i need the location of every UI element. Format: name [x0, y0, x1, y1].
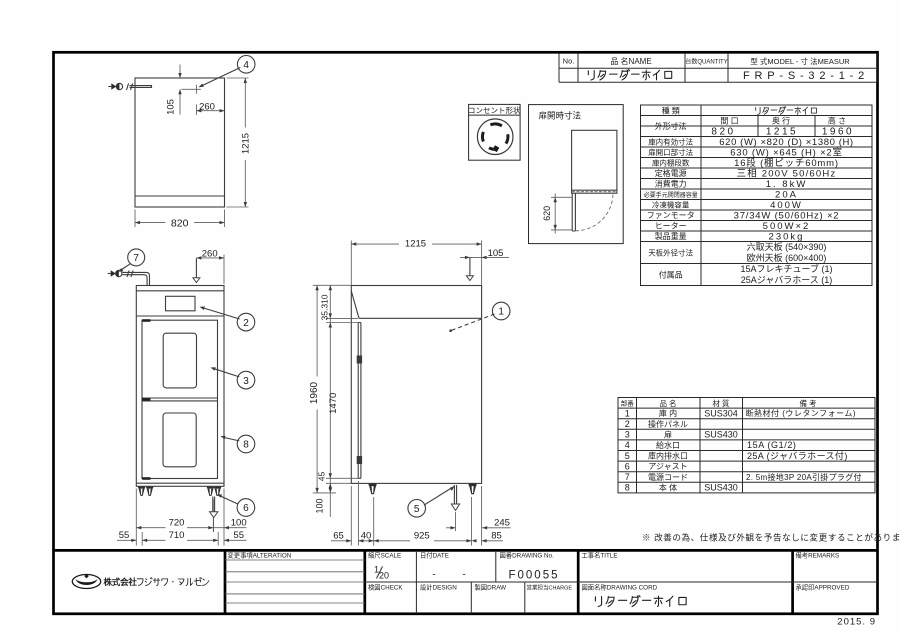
svg-text:種 類: 種 類 [662, 105, 680, 115]
svg-text:奥 行: 奥 行 [772, 116, 790, 126]
svg-text:欧州天板 (600×400): 欧州天板 (600×400) [747, 252, 827, 263]
svg-text:冷凍機容量: 冷凍機容量 [652, 200, 690, 210]
svg-text:株式会社: 株式会社 [104, 577, 138, 587]
svg-text:55: 55 [119, 530, 130, 541]
svg-text:断熱材付 (ウレタンフォーム): 断熱材付 (ウレタンフォーム) [746, 408, 857, 418]
svg-text:コンセント形状: コンセント形状 [468, 105, 521, 115]
svg-text:型 式MODEL - 寸 法MEASUR: 型 式MODEL - 寸 法MEASUR [750, 56, 850, 66]
svg-text:-: - [432, 570, 435, 581]
svg-text:外形寸法: 外形寸法 [655, 121, 687, 131]
svg-text:部番: 部番 [621, 399, 635, 408]
svg-text:105: 105 [488, 248, 504, 259]
svg-text:1215: 1215 [766, 127, 798, 138]
svg-text:ヒーター: ヒーター [655, 222, 687, 231]
svg-text:400W: 400W [770, 200, 803, 211]
svg-text:日付DATE: 日付DATE [420, 551, 449, 560]
svg-text:ファンモータ: ファンモータ [647, 211, 695, 220]
svg-text:六取天板 (540×390): 六取天板 (540×390) [747, 241, 827, 252]
svg-text:間 口: 間 口 [720, 117, 738, 126]
svg-text:2: 2 [243, 318, 249, 329]
svg-text:820: 820 [711, 127, 735, 138]
svg-text:設計DESIGN: 設計DESIGN [420, 583, 457, 592]
svg-text:給水口: 給水口 [656, 440, 680, 450]
svg-text:65: 65 [333, 530, 344, 541]
svg-text:6: 6 [243, 503, 249, 514]
svg-text:庫 内: 庫 内 [659, 408, 677, 418]
svg-text:105: 105 [166, 99, 177, 115]
svg-text:15Aフレキチューブ (1): 15Aフレキチューブ (1) [741, 263, 833, 274]
svg-text:260: 260 [199, 101, 215, 112]
svg-text:25A (ジャバラホース付): 25A (ジャバラホース付) [747, 451, 848, 461]
svg-text:縮尺SCALE: 縮尺SCALE [368, 551, 401, 560]
svg-text:710: 710 [169, 530, 185, 541]
svg-text:品 名NAME: 品 名NAME [610, 56, 651, 66]
svg-text:庫内排水口: 庫内排水口 [648, 451, 688, 461]
svg-text:3: 3 [625, 430, 630, 440]
svg-text:庫内有効寸法: 庫内有効寸法 [648, 137, 693, 147]
svg-text:図番DRAWING No.: 図番DRAWING No. [500, 552, 555, 560]
svg-text:3: 3 [243, 376, 249, 387]
svg-text:620: 620 [542, 206, 552, 221]
svg-text:1: 1 [625, 408, 630, 418]
svg-text:55: 55 [233, 530, 244, 541]
svg-text:庫内棚段数: 庫内棚段数 [652, 158, 690, 168]
svg-text:-: - [462, 570, 465, 581]
svg-text:8: 8 [625, 483, 630, 493]
svg-text:電源コード: 電源コード [648, 473, 688, 482]
svg-text:FRP-S-32-1-2: FRP-S-32-1-2 [743, 70, 869, 82]
svg-text:230kg: 230kg [769, 232, 805, 243]
svg-text:図面名称DRAWING CORD: 図面名称DRAWING CORD [582, 583, 658, 592]
svg-text:扉: 扉 [664, 429, 672, 439]
svg-text:35.310: 35.310 [319, 294, 329, 320]
svg-text:45: 45 [316, 472, 326, 482]
svg-text:1. 8kW: 1. 8kW [766, 179, 808, 190]
svg-text:必要手元開閉器容量: 必要手元開閉器容量 [644, 191, 698, 199]
svg-text:1: 1 [498, 307, 504, 318]
svg-text:工事名TITLE: 工事名TITLE [582, 551, 618, 560]
svg-text:F00055: F00055 [508, 570, 559, 582]
svg-text:消費電力: 消費電力 [655, 179, 687, 189]
svg-text:7: 7 [625, 472, 630, 482]
svg-text:備考REMARKS: 備考REMARKS [796, 551, 840, 560]
svg-text:営業担当CHARGE: 営業担当CHARGE [527, 583, 573, 591]
svg-text:2: 2 [625, 419, 630, 429]
svg-text:検図CHECK: 検図CHECK [368, 583, 403, 592]
svg-text:製品重量: 製品重量 [655, 231, 687, 241]
svg-text:付属品: 付属品 [659, 270, 683, 280]
svg-text:40: 40 [361, 530, 372, 541]
svg-text:620 (W) ×820 (D) ×1380 (H): 620 (W) ×820 (D) ×1380 (H) [719, 137, 853, 148]
svg-text:820: 820 [171, 217, 189, 229]
svg-text:アジャスト: アジャスト [648, 462, 687, 471]
svg-text:定格電源: 定格電源 [655, 168, 687, 178]
svg-text:4: 4 [243, 60, 249, 71]
svg-text:7: 7 [133, 253, 139, 264]
svg-text:25Aジャバラホース (1): 25Aジャバラホース (1) [741, 275, 833, 285]
svg-text:2. 5m接地3P 20A引掛プラグ付: 2. 5m接地3P 20A引掛プラグ付 [746, 472, 862, 482]
svg-text:925: 925 [414, 530, 430, 541]
svg-text:製図DRAW: 製図DRAW [475, 583, 507, 592]
svg-text:100: 100 [314, 498, 324, 513]
svg-text:4: 4 [625, 440, 630, 450]
svg-text:変更事項ALTERATION: 変更事項ALTERATION [228, 551, 292, 560]
svg-text:本 体: 本 体 [659, 482, 677, 492]
svg-text:6: 6 [625, 461, 630, 471]
svg-text:260: 260 [202, 249, 218, 260]
svg-text:三相 200V 50/60Hz: 三相 200V 50/60Hz [737, 168, 837, 180]
svg-text:15A (G1/2): 15A (G1/2) [747, 440, 797, 450]
svg-text:500W×2: 500W×2 [763, 221, 811, 232]
svg-text:16段 (棚ピッチ60mm): 16段 (棚ピッチ60mm) [734, 157, 839, 169]
svg-text:操作パネル: 操作パネル [648, 419, 688, 429]
svg-text:5: 5 [414, 504, 420, 515]
svg-text:SUS430: SUS430 [704, 483, 738, 493]
svg-text:37/34W (50/60Hz) ×2: 37/34W (50/60Hz) ×2 [734, 211, 840, 222]
svg-text:台数QUANTITY: 台数QUANTITY [685, 58, 727, 66]
svg-text:扉開口部寸法: 扉開口部寸法 [648, 147, 693, 157]
svg-text:100: 100 [231, 517, 247, 528]
svg-text:85: 85 [491, 530, 502, 541]
svg-text:20A: 20A [775, 190, 798, 201]
svg-text:SUS304: SUS304 [704, 408, 738, 418]
svg-text:品 名: 品 名 [659, 398, 676, 408]
svg-text:1470: 1470 [328, 393, 339, 414]
svg-text:材 質: 材 質 [712, 398, 730, 408]
svg-text:承認印APPROVED: 承認印APPROVED [796, 583, 850, 592]
svg-text:1215: 1215 [405, 239, 426, 250]
svg-text:720: 720 [169, 517, 185, 528]
svg-text:天板外径寸法: 天板外径寸法 [648, 248, 693, 258]
svg-text:1215: 1215 [240, 133, 251, 154]
svg-text:高 さ: 高 さ [828, 116, 846, 126]
svg-text:8: 8 [243, 440, 249, 451]
svg-text:扉開時寸法: 扉開時寸法 [539, 110, 582, 120]
svg-text:1960: 1960 [822, 127, 854, 138]
svg-text:SUS430: SUS430 [704, 430, 738, 440]
svg-text:5: 5 [625, 451, 630, 461]
svg-text:1960: 1960 [309, 381, 320, 404]
svg-text:2015. 9: 2015. 9 [837, 617, 876, 628]
svg-text:20: 20 [379, 571, 389, 581]
svg-text:No.: No. [563, 57, 575, 66]
svg-text:630 (W) ×645 (H) ×2室: 630 (W) ×645 (H) ×2室 [730, 147, 843, 159]
svg-text:※ 改善の為、仕様及び外観を予告なしに変更することがありま: ※ 改善の為、仕様及び外観を予告なしに変更することがあります。 [642, 532, 900, 543]
svg-text:245: 245 [494, 517, 510, 528]
svg-text:備 考: 備 考 [799, 398, 817, 408]
